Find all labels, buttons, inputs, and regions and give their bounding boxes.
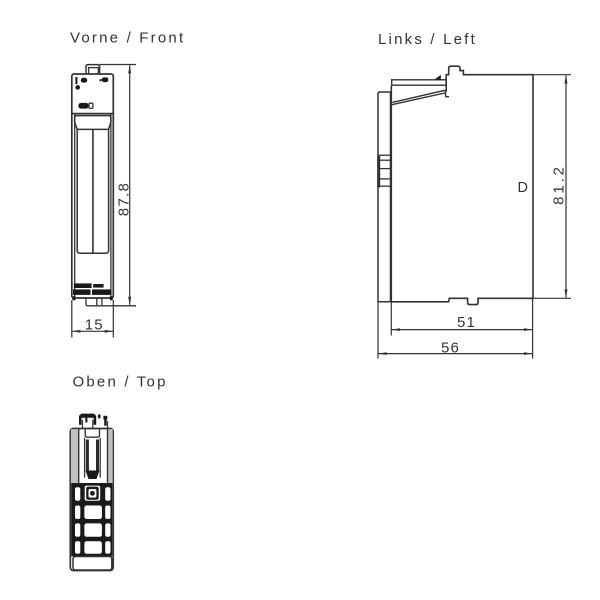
svg-text:Vorne / Front: Vorne / Front [70,30,185,47]
svg-text:81.2: 81.2 [551,164,568,205]
svg-text:D: D [518,180,528,196]
svg-text:Links / Left: Links / Left [378,31,477,48]
svg-text:51: 51 [457,314,476,331]
svg-text:Oben / Top: Oben / Top [73,374,168,391]
svg-text:87.8: 87.8 [116,182,133,216]
svg-text:15: 15 [85,316,104,333]
svg-text:56: 56 [441,339,460,356]
